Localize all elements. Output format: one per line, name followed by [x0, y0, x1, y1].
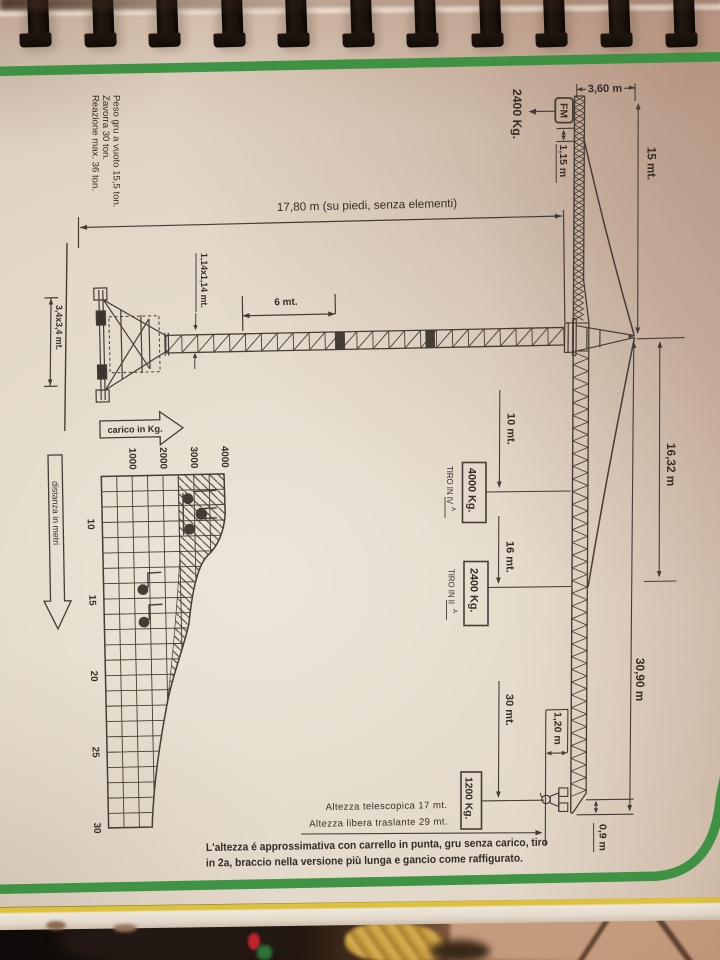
svg-text:in 2a, braccio nella versione: in 2a, braccio nella versione più lunga … — [206, 853, 523, 870]
svg-text:Zavorra 30 ton.: Zavorra 30 ton. — [100, 95, 111, 160]
svg-text:2400 Kg.: 2400 Kg. — [468, 568, 480, 612]
svg-text:Altezza telescopica 17 mt.: Altezza telescopica 17 mt. — [326, 800, 448, 813]
svg-text:10: 10 — [85, 519, 96, 531]
svg-text:3,60 m: 3,60 m — [588, 83, 623, 96]
svg-text:1,14x1,14 mt.: 1,14x1,14 mt. — [199, 253, 209, 308]
svg-text:1,20 m: 1,20 m — [552, 712, 564, 745]
svg-text:TIRO IN IV: TIRO IN IV — [445, 466, 454, 505]
svg-text:A: A — [450, 507, 456, 511]
svg-text:16,32 m: 16,32 m — [664, 443, 678, 486]
svg-text:6 mt.: 6 mt. — [274, 297, 298, 308]
svg-text:L'altezza é approssimativa con: L'altezza é approssimativa con carrello … — [206, 837, 548, 854]
svg-text:2000: 2000 — [157, 447, 168, 470]
svg-text:1000: 1000 — [126, 448, 137, 471]
svg-text:16 mt.: 16 mt. — [504, 541, 516, 573]
svg-text:15 mt.: 15 mt. — [645, 147, 657, 180]
svg-text:3000: 3000 — [188, 446, 199, 469]
svg-text:A: A — [451, 609, 457, 613]
svg-text:1,15 m: 1,15 m — [557, 145, 569, 178]
svg-text:0,9 m: 0,9 m — [597, 824, 609, 851]
svg-text:10 mt.: 10 mt. — [505, 413, 517, 445]
svg-text:distanza in metri: distanza in metri — [50, 481, 61, 545]
svg-text:4000: 4000 — [219, 446, 230, 469]
svg-text:3,4x3,4 mt.: 3,4x3,4 mt. — [54, 305, 64, 350]
svg-text:30: 30 — [91, 823, 102, 835]
svg-text:FM: FM — [558, 103, 570, 118]
svg-text:TIRO IN II: TIRO IN II — [447, 569, 456, 604]
svg-text:17,80 m (su piedi, senza eleme: 17,80 m (su piedi, senza elementi) — [277, 196, 458, 214]
svg-text:Peso gru a vuoto 15,5 ton.: Peso gru a vuoto 15,5 ton. — [111, 95, 122, 208]
svg-text:15: 15 — [86, 595, 97, 607]
svg-text:4000 Kg.: 4000 Kg. — [466, 468, 478, 512]
svg-text:25: 25 — [89, 747, 100, 759]
svg-text:30 mt.: 30 mt. — [503, 694, 515, 726]
svg-text:carico in Kg.: carico in Kg. — [107, 424, 162, 435]
svg-text:1200 Kg.: 1200 Kg. — [463, 777, 474, 819]
svg-text:2400 Kg.: 2400 Kg. — [510, 89, 524, 139]
svg-text:Altezza libera traslante 29 mt: Altezza libera traslante 29 mt. — [309, 817, 448, 830]
svg-text:Reazione max. 36 ton.: Reazione max. 36 ton. — [90, 95, 101, 191]
svg-text:30,90 m: 30,90 m — [633, 658, 647, 701]
svg-text:20: 20 — [88, 671, 99, 683]
